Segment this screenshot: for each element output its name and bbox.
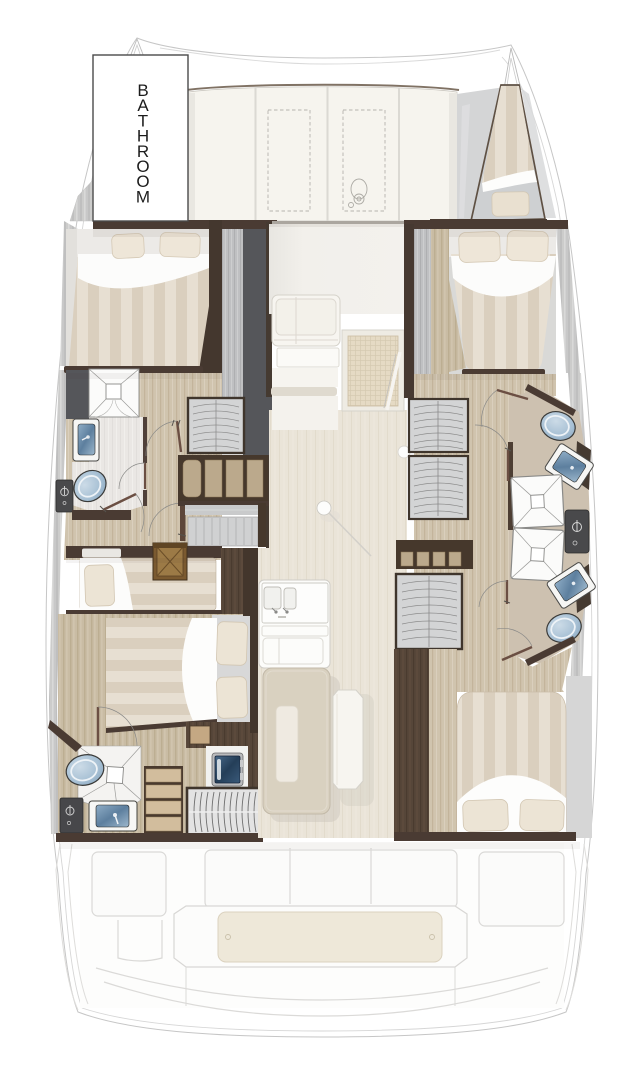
svg-text:M: M xyxy=(136,187,150,206)
